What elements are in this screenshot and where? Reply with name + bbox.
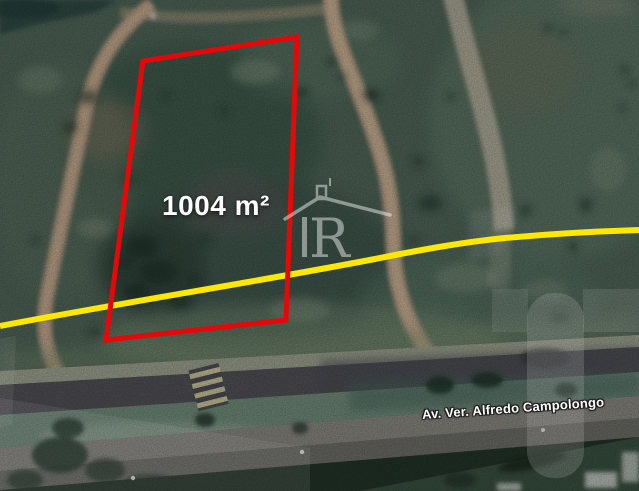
realty-watermark: R xyxy=(281,175,397,265)
watermark-letter: R xyxy=(309,207,351,265)
house-logo-icon: R xyxy=(281,175,397,265)
plot-area-label: 1004 m² xyxy=(162,190,270,222)
satellite-image: R 1004 m² Av. Ver. Alfredo Campolongo xyxy=(0,0,639,491)
